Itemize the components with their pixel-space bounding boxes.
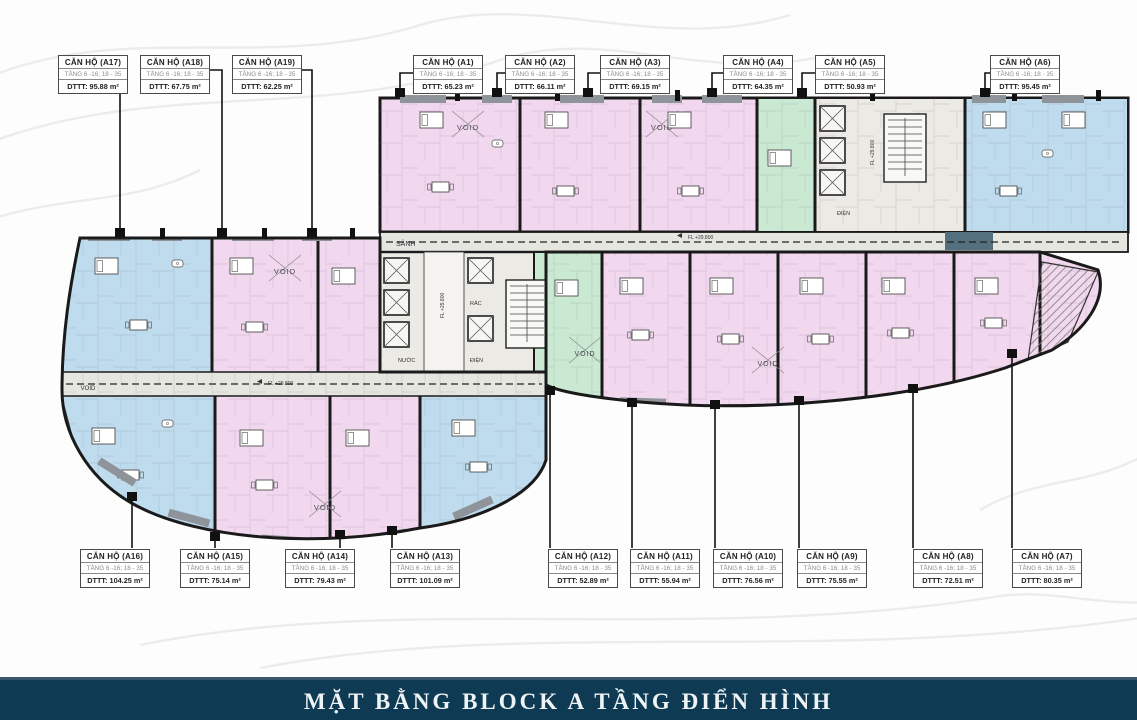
unit-area: DTTT: 72.51 m² xyxy=(914,574,982,587)
stairs-icon xyxy=(884,114,926,182)
unit-label-a1: CĂN HỘ (A1) TẦNG 6 -16; 18 - 35 DTTT: 65… xyxy=(413,55,483,94)
unit-label-a9: CĂN HỘ (A9) TẦNG 6 -16; 18 - 35 DTTT: 75… xyxy=(797,549,867,588)
unit-floors: TẦNG 6 -16; 18 - 35 xyxy=(724,69,792,80)
elevator-icon xyxy=(384,322,409,347)
unit-area: DTTT: 75.55 m² xyxy=(798,574,866,587)
unit-area: DTTT: 64.35 m² xyxy=(724,80,792,93)
upper-corridor: SẢNH FL +29.800 xyxy=(380,232,1128,252)
unit-label-a8: CĂN HỘ (A8) TẦNG 6 -16; 18 - 35 DTTT: 72… xyxy=(913,549,983,588)
electric-room-label: ĐIỆN xyxy=(470,356,483,364)
page-title: MẶT BẰNG BLOCK A TẦNG ĐIỂN HÌNH xyxy=(304,689,833,715)
unit-floors: TẦNG 6 -16; 18 - 35 xyxy=(798,563,866,574)
elevator-icon xyxy=(820,106,845,131)
unit-title: CĂN HỘ (A12) xyxy=(549,550,617,563)
unit-title: CĂN HỘ (A18) xyxy=(141,56,209,69)
unit-floors: TẦNG 6 -16; 18 - 35 xyxy=(141,69,209,80)
unit-area: DTTT: 55.94 m² xyxy=(631,574,699,587)
lobby-label: SẢNH xyxy=(396,239,415,248)
unit-label-a12: CĂN HỘ (A12) TẦNG 6 -16; 18 - 35 DTTT: 5… xyxy=(548,549,618,588)
unit-area: DTTT: 69.15 m² xyxy=(601,80,669,93)
void-label: VOID xyxy=(81,386,96,392)
elevator-icon xyxy=(468,316,493,341)
unit-title: CĂN HỘ (A19) xyxy=(233,56,301,69)
unit-area: DTTT: 62.25 m² xyxy=(233,80,301,93)
unit-area: DTTT: 65.23 m² xyxy=(414,80,482,93)
unit-floors: TẦNG 6 -16; 18 - 35 xyxy=(81,563,149,574)
elevator-icon xyxy=(384,290,409,315)
unit-title: CĂN HỘ (A9) xyxy=(798,550,866,563)
unit-floors: TẦNG 6 -16; 18 - 35 xyxy=(601,69,669,80)
unit-floors: TẦNG 6 -16; 18 - 35 xyxy=(391,563,459,574)
lower-right-wing: VOID VOID xyxy=(540,248,1110,418)
upper-wing: ĐIỆN FL +29.800 VOID VOID xyxy=(380,90,1128,232)
unit-label-a14: CĂN HỘ (A14) TẦNG 6 -16; 18 - 35 DTTT: 7… xyxy=(285,549,355,588)
unit-area: DTTT: 80.35 m² xyxy=(1013,574,1081,587)
unit-area: DTTT: 66.11 m² xyxy=(506,80,574,93)
unit-title: CĂN HỘ (A15) xyxy=(181,550,249,563)
unit-label-a10: CĂN HỘ (A10) TẦNG 6 -16; 18 - 35 DTTT: 7… xyxy=(713,549,783,588)
unit-area: DTTT: 101.09 m² xyxy=(391,574,459,587)
void-label: VOID xyxy=(757,361,778,368)
unit-floors: TẦNG 6 -16; 18 - 35 xyxy=(233,69,301,80)
elevator-icon xyxy=(384,258,409,283)
unit-label-a19: CĂN HỘ (A19) TẦNG 6 -16; 18 - 35 DTTT: 6… xyxy=(232,55,302,94)
unit-label-a5: CĂN HỘ (A5) TẦNG 6 -16; 18 - 35 DTTT: 50… xyxy=(815,55,885,94)
unit-label-a13: CĂN HỘ (A13) TẦNG 6 -16; 18 - 35 DTTT: 1… xyxy=(390,549,460,588)
unit-label-a16: CĂN HỘ (A16) TẦNG 6 -16; 18 - 35 DTTT: 1… xyxy=(80,549,150,588)
unit-title: CĂN HỘ (A14) xyxy=(286,550,354,563)
title-bar: MẶT BẰNG BLOCK A TẦNG ĐIỂN HÌNH xyxy=(0,677,1137,720)
electric-room-label: ĐIỆN xyxy=(837,209,850,217)
unit-floors: TẦNG 6 -16; 18 - 35 xyxy=(506,69,574,80)
unit-label-a17: CĂN HỘ (A17) TẦNG 6 -16; 18 - 35 DTTT: 9… xyxy=(58,55,128,94)
unit-area: DTTT: 50.93 m² xyxy=(816,80,884,93)
unit-title: CĂN HỘ (A2) xyxy=(506,56,574,69)
elevator-icon xyxy=(820,138,845,163)
level-label: FL +29.800 xyxy=(268,381,293,387)
unit-title: CĂN HỘ (A3) xyxy=(601,56,669,69)
unit-area: DTTT: 95.88 m² xyxy=(59,80,127,93)
unit-title: CĂN HỘ (A7) xyxy=(1013,550,1081,563)
unit-title: CĂN HỘ (A8) xyxy=(914,550,982,563)
unit-area: DTTT: 52.89 m² xyxy=(549,574,617,587)
unit-floors: TẦNG 6 -16; 18 - 35 xyxy=(1013,563,1081,574)
floor-plan-page: ĐIỆN FL +29.800 VOID VOID SẢNH FL +29.80… xyxy=(0,0,1137,720)
unit-title: CĂN HỘ (A4) xyxy=(724,56,792,69)
unit-area: DTTT: 75.14 m² xyxy=(181,574,249,587)
unit-label-a4: CĂN HỘ (A4) TẦNG 6 -16; 18 - 35 DTTT: 64… xyxy=(723,55,793,94)
unit-floors: TẦNG 6 -16; 18 - 35 xyxy=(181,563,249,574)
unit-floors: TẦNG 6 -16; 18 - 35 xyxy=(59,69,127,80)
level-label: FL +29.800 xyxy=(688,235,713,241)
unit-area: DTTT: 104.25 m² xyxy=(81,574,149,587)
unit-label-a15: CĂN HỘ (A15) TẦNG 6 -16; 18 - 35 DTTT: 7… xyxy=(180,549,250,588)
unit-title: CĂN HỘ (A1) xyxy=(414,56,482,69)
void-label: VOID xyxy=(274,267,296,276)
unit-floors: TẦNG 6 -16; 18 - 35 xyxy=(549,563,617,574)
unit-floors: TẦNG 6 -16; 18 - 35 xyxy=(286,563,354,574)
unit-title: CĂN HỘ (A11) xyxy=(631,550,699,563)
level-label: FL +29.800 xyxy=(440,293,446,318)
unit-floors: TẦNG 6 -16; 18 - 35 xyxy=(414,69,482,80)
unit-label-a11: CĂN HỘ (A11) TẦNG 6 -16; 18 - 35 DTTT: 5… xyxy=(630,549,700,588)
unit-label-a2: CĂN HỘ (A2) TẦNG 6 -16; 18 - 35 DTTT: 66… xyxy=(505,55,575,94)
unit-floors: TẦNG 6 -16; 18 - 35 xyxy=(914,563,982,574)
unit-title: CĂN HỘ (A6) xyxy=(991,56,1059,69)
floor-plan: ĐIỆN FL +29.800 VOID VOID SẢNH FL +29.80… xyxy=(0,0,1137,720)
unit-title: CĂN HỘ (A10) xyxy=(714,550,782,563)
unit-title: CĂN HỘ (A5) xyxy=(816,56,884,69)
unit-title: CĂN HỘ (A16) xyxy=(81,550,149,563)
unit-area: DTTT: 79.43 m² xyxy=(286,574,354,587)
void-label: VOID xyxy=(314,503,336,512)
unit-area: DTTT: 67.75 m² xyxy=(141,80,209,93)
trash-room-label: RÁC xyxy=(470,300,482,307)
unit-floors: TẦNG 6 -16; 18 - 35 xyxy=(714,563,782,574)
unit-area: DTTT: 76.56 m² xyxy=(714,574,782,587)
unit-label-a18: CĂN HỘ (A18) TẦNG 6 -16; 18 - 35 DTTT: 6… xyxy=(140,55,210,94)
void-label: VOID xyxy=(574,351,595,358)
unit-label-a6: CĂN HỘ (A6) TẦNG 6 -16; 18 - 35 DTTT: 95… xyxy=(990,55,1060,94)
unit-area: DTTT: 95.45 m² xyxy=(991,80,1059,93)
unit-floors: TẦNG 6 -16; 18 - 35 xyxy=(631,563,699,574)
unit-title: CĂN HỘ (A13) xyxy=(391,550,459,563)
unit-label-a3: CĂN HỘ (A3) TẦNG 6 -16; 18 - 35 DTTT: 69… xyxy=(600,55,670,94)
unit-title: CĂN HỘ (A17) xyxy=(59,56,127,69)
unit-label-a7: CĂN HỘ (A7) TẦNG 6 -16; 18 - 35 DTTT: 80… xyxy=(1012,549,1082,588)
level-label: FL +29.800 xyxy=(870,140,876,165)
elevator-icon xyxy=(820,170,845,195)
water-room-label: NƯỚC xyxy=(398,357,415,364)
unit-floors: TẦNG 6 -16; 18 - 35 xyxy=(991,69,1059,80)
unit-floors: TẦNG 6 -16; 18 - 35 xyxy=(816,69,884,80)
void-label: VOID xyxy=(457,123,479,132)
stairs-icon xyxy=(506,280,548,348)
elevator-icon xyxy=(468,258,493,283)
